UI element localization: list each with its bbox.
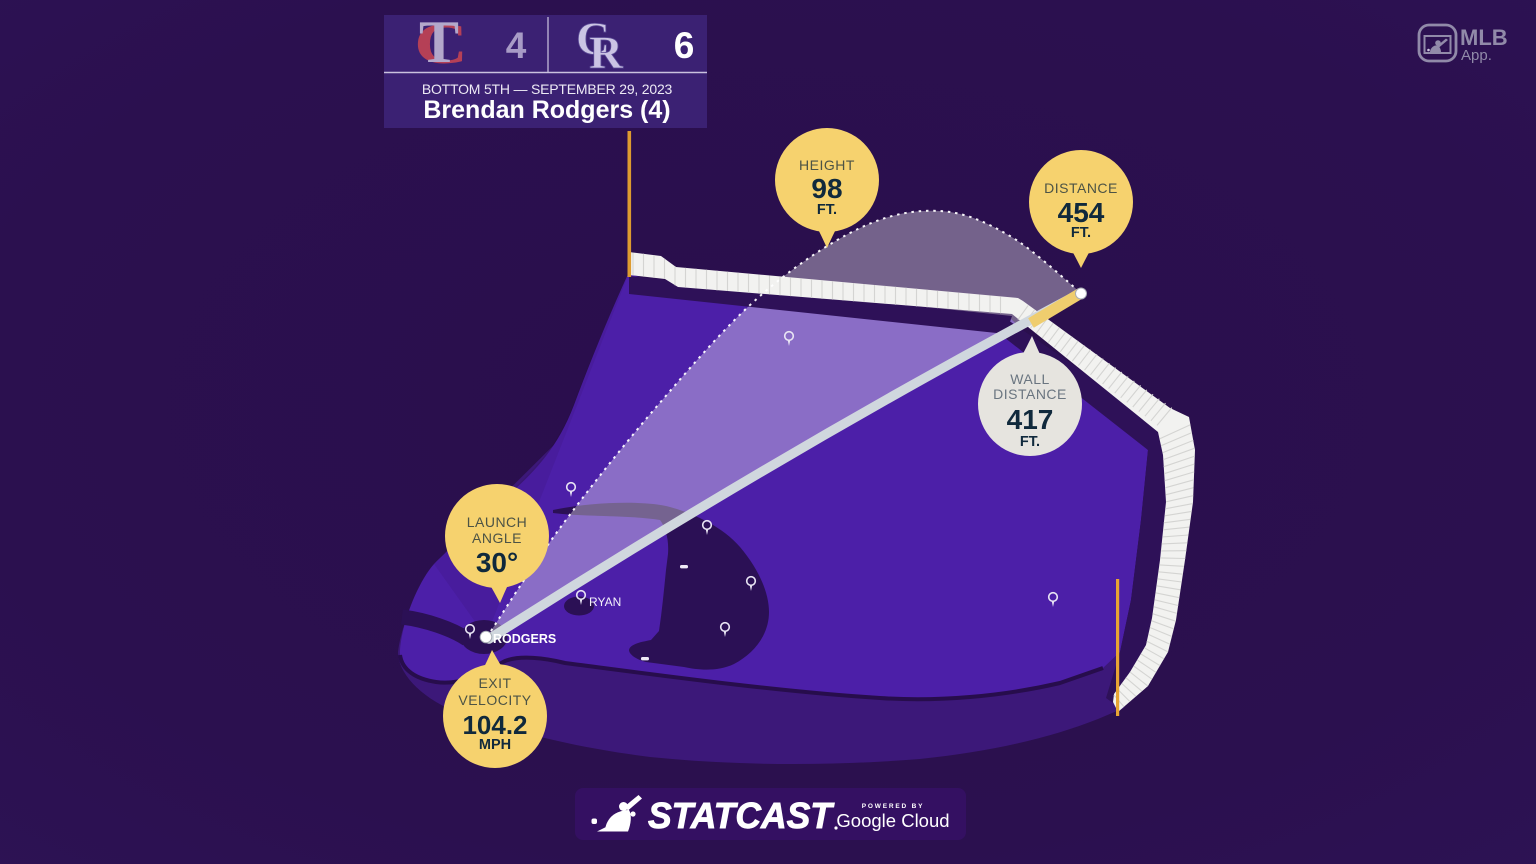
svg-text:417: 417 <box>1007 404 1054 435</box>
svg-text:FT.: FT. <box>1020 434 1040 450</box>
svg-text:R: R <box>589 27 624 79</box>
svg-text:WALL: WALL <box>1010 371 1050 387</box>
svg-text:104.2: 104.2 <box>462 710 527 740</box>
svg-text:BOTTOM 5TH — SEPTEMBER 29, 202: BOTTOM 5TH — SEPTEMBER 29, 2023 <box>422 81 673 97</box>
svg-text:RYAN: RYAN <box>589 595 621 609</box>
svg-text:STATCAST: STATCAST <box>648 795 835 836</box>
svg-text:DISTANCE: DISTANCE <box>993 386 1067 402</box>
svg-text:Google Cloud: Google Cloud <box>836 810 949 831</box>
svg-text:Brendan Rodgers (4): Brendan Rodgers (4) <box>423 96 670 124</box>
svg-text:DISTANCE: DISTANCE <box>1044 180 1118 196</box>
svg-text:HEIGHT: HEIGHT <box>799 157 855 173</box>
svg-text:454: 454 <box>1058 197 1105 228</box>
svg-text:6: 6 <box>674 25 695 66</box>
svg-text:FT.: FT. <box>817 202 837 218</box>
svg-text:30°: 30° <box>476 547 518 578</box>
svg-text:ANGLE: ANGLE <box>472 530 522 546</box>
svg-text:POWERED BY: POWERED BY <box>862 803 924 810</box>
svg-text:EXIT: EXIT <box>478 675 511 691</box>
svg-text:MPH: MPH <box>479 737 511 753</box>
svg-text:LAUNCH: LAUNCH <box>467 514 528 530</box>
svg-text:App.: App. <box>1461 47 1492 64</box>
svg-text:4: 4 <box>506 25 527 66</box>
svg-text:98: 98 <box>811 173 842 204</box>
svg-text:T: T <box>419 9 459 75</box>
svg-text:FT.: FT. <box>1071 225 1091 241</box>
svg-text:VELOCITY: VELOCITY <box>458 692 531 708</box>
svg-text:RODGERS: RODGERS <box>493 632 556 646</box>
